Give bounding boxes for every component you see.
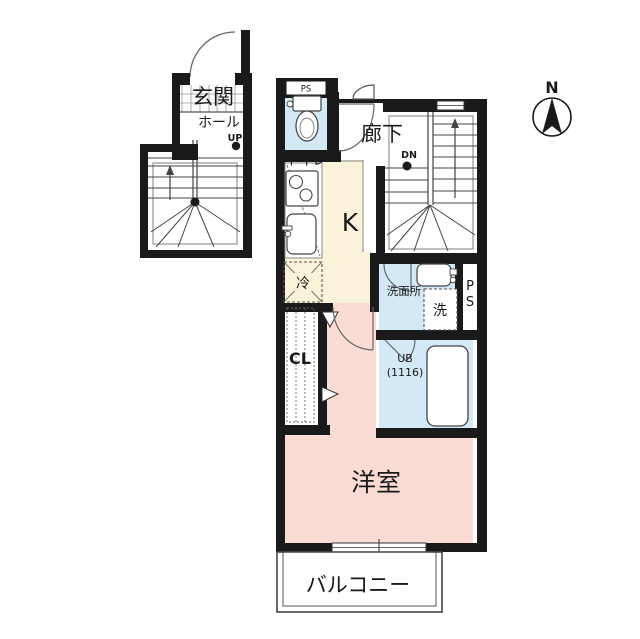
compass: N bbox=[533, 78, 571, 136]
wall-stairs-left bbox=[376, 166, 385, 256]
kitchen-counter bbox=[282, 163, 322, 258]
stairs-2f-up-arrow bbox=[451, 118, 459, 128]
stove-icon bbox=[286, 171, 318, 206]
washbasin-icon bbox=[417, 264, 457, 286]
dn-label: DN bbox=[401, 150, 417, 161]
wall-unit-right bbox=[477, 99, 487, 552]
stairs-2f-dn-dot bbox=[403, 162, 412, 171]
stairs-1f-rail-dot bbox=[191, 198, 200, 207]
corridor-small-door bbox=[353, 85, 374, 99]
ps-toilet-label: PS bbox=[301, 85, 312, 95]
stairs-2f-left-treads bbox=[385, 168, 428, 203]
wall-unit-top-right bbox=[383, 99, 487, 112]
pipe-space-s-label: S bbox=[466, 295, 474, 310]
balcony-label: バルコニー bbox=[306, 573, 411, 597]
stairs-1f-treads bbox=[148, 158, 243, 198]
floorplan-page: N 玄関 ホール UP PS PS トイレ 廊下 DN K 冷 洗面所 洗 P … bbox=[0, 0, 640, 639]
wall-closet-right bbox=[318, 303, 327, 435]
wall-entrance-bottom bbox=[140, 250, 252, 258]
unit-bath-label: UB bbox=[397, 352, 413, 365]
ps-stair-label: PS bbox=[179, 149, 190, 159]
corridor-label: 廊下 bbox=[361, 122, 403, 146]
wall-entrance-left-upper bbox=[172, 73, 180, 152]
closet-label: CL bbox=[289, 349, 311, 368]
western-room-label: 洋室 bbox=[351, 468, 401, 497]
up-label: UP bbox=[228, 133, 243, 144]
wall-unit-left bbox=[276, 78, 285, 552]
bathtub-icon bbox=[427, 346, 468, 426]
stairs-1f-winder-lines bbox=[151, 202, 240, 247]
stairs-2f-center-rail bbox=[428, 112, 433, 205]
entrance-label: 玄関 bbox=[192, 85, 234, 109]
refrigerator-label: 冷 bbox=[296, 276, 310, 292]
kitchen-label: K bbox=[342, 208, 359, 237]
stairs-2f-winder-lines bbox=[387, 205, 475, 251]
washer-label: 洗 bbox=[433, 303, 447, 319]
western-room-floor-upper bbox=[326, 303, 376, 433]
window-top bbox=[437, 101, 464, 110]
wall-toilet-right bbox=[327, 92, 339, 152]
entrance-door-leaf bbox=[241, 30, 250, 75]
hall-label: ホール bbox=[198, 115, 240, 131]
wall-washroom-bath bbox=[376, 330, 487, 340]
wall-closet-bottom bbox=[276, 425, 330, 435]
toilet-label: トイレ bbox=[286, 154, 325, 169]
washroom-label: 洗面所 bbox=[387, 284, 422, 298]
compass-north-label: N bbox=[545, 78, 558, 97]
wall-entrance-left-lower bbox=[140, 144, 148, 258]
wall-entrance-right bbox=[243, 73, 252, 258]
unit-bath-size-label: (1116) bbox=[387, 366, 424, 379]
wall-washroom-top bbox=[376, 253, 487, 264]
sink-icon bbox=[282, 214, 316, 254]
wall-bath-bottom bbox=[376, 428, 487, 438]
entrance-door-arc bbox=[190, 32, 235, 77]
floorplan-drawing: N 玄関 ホール UP PS PS トイレ 廊下 DN K 冷 洗面所 洗 P … bbox=[0, 0, 640, 639]
pipe-space-p-label: P bbox=[466, 279, 474, 294]
compass-needle-icon bbox=[542, 98, 562, 134]
